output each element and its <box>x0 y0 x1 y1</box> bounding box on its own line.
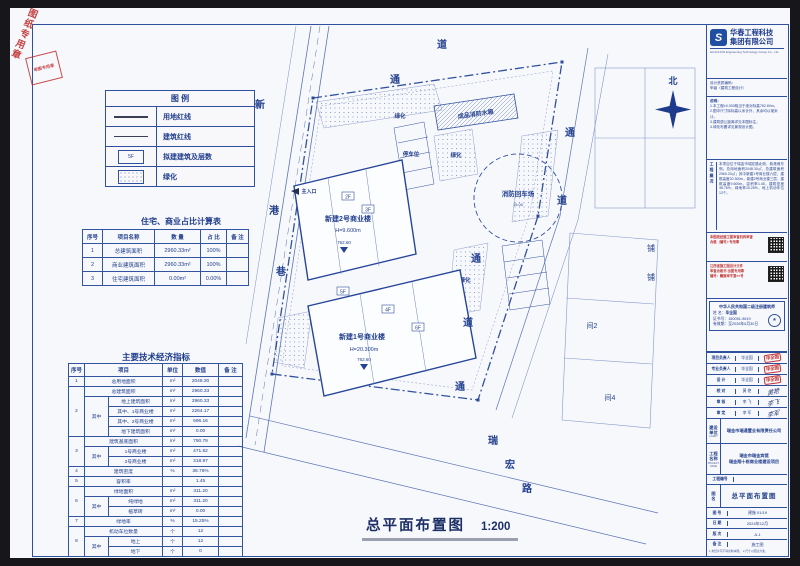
table-row: 其中纯绿地m²311.20 <box>69 497 243 507</box>
table-cell: 其中 <box>85 447 109 467</box>
table-cell: 个 <box>163 547 183 557</box>
ratio-table-title: 住宅、商业占比计算表 <box>106 216 256 227</box>
neighbor-label: 间4 <box>605 394 616 402</box>
table-row: 其中地上个12 <box>69 537 243 547</box>
signature-row: 审 定 李 军 李军 <box>707 408 787 419</box>
figure-name-section: 图 名 总平面布置图 <box>707 485 787 508</box>
architect-valid-date: 至2026年6月30日 <box>728 322 758 326</box>
table-cell <box>219 417 243 427</box>
road-name-char: 通 <box>455 381 465 393</box>
table-cell: 0.00m² <box>155 272 201 286</box>
table-cell: 2960.33m² <box>155 258 201 272</box>
project-no-row: 工程编号 <box>707 475 787 485</box>
building2-height: H=9.600m <box>335 228 361 234</box>
ratio-table: 序号项目名称数 量占 比备 注1总建筑面积2960.33m²100%2商业建筑面… <box>82 229 248 286</box>
table-cell <box>219 507 243 517</box>
company-logo-icon: S <box>710 29 727 46</box>
table-cell: 植草砖 <box>109 507 163 517</box>
table-cell: m² <box>163 427 183 437</box>
header-cell: 数 量 <box>155 230 201 244</box>
title-block: S 华春工程科技 集团有限公司 HUACHUN Engineering Tech… <box>707 24 787 555</box>
buildings <box>294 160 476 396</box>
overview-side-label: 工程概况 <box>710 162 717 230</box>
table-row: 2总建筑面积m²2960.33 <box>69 387 243 397</box>
client-name: 瑞金市瑞通置业有限责任公司 <box>721 419 787 443</box>
signature-row: 项目负责人 毕全国 毕全国 <box>707 353 787 364</box>
architect-stamp: 中华人民共和国二级注册建筑师 姓 名：毕全国 证书号：150051-9619 有… <box>709 301 785 331</box>
table-cell: 其中 <box>85 497 109 517</box>
meta-row: 版 次 A-1 <box>707 529 787 540</box>
building2-name: 新建2号商业楼 <box>325 214 371 223</box>
note-line: 2.图中尺寸除标高以米计外，其余均以毫米计。 <box>710 109 784 119</box>
table-cell: 311.20 <box>183 497 219 507</box>
table-cell: 38.76% <box>183 467 219 477</box>
table-row: 7绿地率%15.25% <box>69 517 243 527</box>
architect-stamp-section: 中华人民共和国二级注册建筑师 姓 名：毕全国 证书号：150051-9619 有… <box>707 299 787 352</box>
table-cell <box>219 427 243 437</box>
company-name-line2: 集团有限公司 <box>730 38 773 46</box>
north-label: 北 <box>668 75 677 86</box>
table-row: 6绿地面积m²311.20 <box>69 487 243 497</box>
table-cell: m² <box>163 397 183 407</box>
table-cell: m² <box>163 377 183 387</box>
qr-code-icon <box>768 237 784 253</box>
fire-turnaround-dim: 15.00 <box>513 202 524 207</box>
sheet-remark: 施工图 <box>728 542 787 548</box>
table-cell: 6 <box>69 487 85 517</box>
table-cell: 其中、1号商业楼 <box>109 407 163 417</box>
table-cell: 1 <box>83 244 103 258</box>
client-section: 建设单位CLIENT 瑞金市瑞通置业有限责任公司 <box>707 419 787 444</box>
table-cell: 100% <box>201 258 227 272</box>
compass-star-icon <box>655 90 691 129</box>
table-cell: 地下建筑面积 <box>109 427 163 437</box>
table-row: 4建筑密度%38.76% <box>69 467 243 477</box>
header-cell: 项目名称 <box>103 230 155 244</box>
entrance-label: 主入口 <box>301 188 316 195</box>
table-cell: 其中、2号商业楼 <box>109 417 163 427</box>
table-cell: 2048.30 <box>183 377 219 387</box>
table-cell: m² <box>163 407 183 417</box>
road-name-char: 新 <box>255 98 265 111</box>
legend-item: 建筑红线 <box>106 127 254 147</box>
table-cell: 318.97 <box>183 457 219 467</box>
building2-elevation: 762.60 <box>337 240 351 245</box>
table-cell: 790.79 <box>183 437 219 447</box>
company-name-en: HUACHUN Engineering Technology Group Co.… <box>710 48 784 54</box>
signature-row: 校 对 黄 艳 黄艳 <box>707 386 787 397</box>
svg-text:4F: 4F <box>385 308 391 314</box>
handwritten-signature: 李军 <box>767 407 779 419</box>
review-stamp-a: 本图纸经施工图审查机构审查 合格（编号）·专用章 <box>707 233 787 262</box>
sheet-title-text: 总平面布置图 <box>366 514 465 535</box>
neighbor-label: 铺 <box>647 272 655 282</box>
table-cell: 个 <box>163 537 183 547</box>
notes-section: 说明： 1.本工程±0.000相当于绝对标高762.60m。 2.图中尺寸除标高… <box>707 97 787 160</box>
table-cell: 12 <box>183 537 219 547</box>
table-cell: 地上建筑面积 <box>109 397 163 407</box>
building-symbol: 5F <box>118 150 144 164</box>
signature-stamp: 毕全国 <box>764 364 782 374</box>
table-row: 3建筑基底面积m²790.79 <box>69 437 243 447</box>
indicator-table: 序号项目单位数值备 注1总用地面积m²2048.302总建筑面积m²2960.3… <box>68 363 242 557</box>
table-cell: 2960.33 <box>183 387 219 397</box>
header-cell: 备 注 <box>219 364 243 377</box>
table-cell: 2号商业楼 <box>109 457 163 467</box>
table-row: 其中1号商业楼m²471.82 <box>69 447 243 457</box>
table-row: 8机动车位数量个12 <box>69 527 243 537</box>
header-cell: 序号 <box>83 230 103 244</box>
table-cell: 总用地面积 <box>85 377 163 387</box>
table-cell: 1 <box>69 377 85 387</box>
table-cell <box>219 447 243 457</box>
table-cell: 2960.33 <box>183 397 219 407</box>
neighbor-parcels <box>562 68 695 428</box>
table-cell: m² <box>163 417 183 427</box>
architect-name: 毕全国 <box>725 311 736 315</box>
footnote: 1.未经许可不得复制本图。 2.尺寸以图注为准。 <box>707 549 787 555</box>
header-cell: 序号 <box>69 364 85 377</box>
table-cell: 100% <box>201 244 227 258</box>
table-cell: 绿地率 <box>85 517 163 527</box>
greenery-symbol <box>118 170 144 184</box>
legend-item: 绿化 <box>106 167 254 186</box>
table-cell: 2 <box>83 258 103 272</box>
company-section: S 华春工程科技 集团有限公司 HUACHUN Engineering Tech… <box>707 24 787 79</box>
road-name-char: 港 <box>269 204 280 217</box>
table-row: 其中地上建筑面积m²2960.33 <box>69 397 243 407</box>
header-cell: 单位 <box>163 364 183 377</box>
table-cell: 建筑密度 <box>85 467 163 477</box>
sheet-meta-rows: 图 号 建施 01/19 日 期 2024年12月 版 次 A-1 备 注 施工… <box>707 508 787 549</box>
table-cell: 地下 <box>109 547 163 557</box>
table-cell <box>219 467 243 477</box>
overview-section: 工程概况 本项目位于瑞金市瑞宏路北侧、新港巷东侧。总用地面积2048.30㎡，总… <box>707 160 787 233</box>
table-cell: 总建筑面积 <box>85 387 163 397</box>
table-cell: 1.45 <box>183 477 219 487</box>
table-row: 1总建筑面积2960.33m²100% <box>83 244 249 258</box>
table-cell: 696.16 <box>183 417 219 427</box>
legend-item: 5F 拟建建筑及层数 <box>106 147 254 167</box>
table-cell: 机动车位数量 <box>85 527 163 537</box>
signature-row: 设 计 毕全国 毕全国 <box>707 375 787 386</box>
architect-stamp-title: 中华人民共和国二级注册建筑师 <box>713 304 781 310</box>
road-name-char: 道 <box>557 194 567 207</box>
table-cell: m² <box>163 497 183 507</box>
table-cell: 商业建筑面积 <box>103 258 155 272</box>
note-line: 4.绿化布置详见景观设计图。 <box>710 125 784 130</box>
meta-row: 日 期 2024年12月 <box>707 519 787 530</box>
meta-row: 图 号 建施 01/19 <box>707 508 787 519</box>
table-cell <box>219 477 243 487</box>
table-cell: 容积率 <box>85 477 163 487</box>
table: 序号项目名称数 量占 比备 注1总建筑面积2960.33m²100%2商业建筑面… <box>82 229 249 286</box>
sheet-number: 建施 01/19 <box>728 510 787 516</box>
table-cell <box>219 377 243 387</box>
paper: 铺 铺 间2 间4 成品消防水箱 <box>10 8 790 558</box>
road-name-char: 通 <box>565 127 575 139</box>
table-cell: 2264.17 <box>183 407 219 417</box>
table-cell: 311.20 <box>183 487 219 497</box>
architect-cert-no: 150051-9619 <box>728 317 750 321</box>
road-name-char: 宏 <box>505 458 515 471</box>
svg-text:2F: 2F <box>345 195 351 201</box>
table-cell <box>219 527 243 537</box>
table-cell: 1号商业楼 <box>109 447 163 457</box>
signature-table: 项目负责人 毕全国 毕全国 专业负责人 毕全国 毕全国 设 计 毕全国 毕全国 … <box>707 353 787 419</box>
table-cell: 建筑基底面积 <box>85 437 163 447</box>
meta-row: 备 注 施工图 <box>707 540 787 550</box>
table-cell: 7 <box>69 517 85 527</box>
building1-elevation: 762.60 <box>357 357 371 362</box>
table-cell: 3 <box>69 437 85 467</box>
sheet-title: 总平面布置图 1:200 <box>362 514 518 541</box>
table-cell: 0.00 <box>183 507 219 517</box>
table-cell <box>219 497 243 507</box>
table-cell: 5 <box>69 477 85 487</box>
table-cell: m² <box>163 387 183 397</box>
table-cell: 0.00% <box>201 272 227 286</box>
svg-text:6F: 6F <box>415 326 421 332</box>
table-row: 1总用地面积m²2048.30 <box>69 377 243 387</box>
svg-text:3F: 3F <box>365 208 371 214</box>
table-cell <box>227 272 249 286</box>
signature-stamp: 毕全国 <box>764 353 782 363</box>
table-cell: m² <box>163 507 183 517</box>
overview-text: 本项目位于瑞金市瑞宏路北侧、新港巷东侧。总用地面积2048.30㎡，总建筑面积2… <box>719 162 784 230</box>
table-cell: 471.82 <box>183 447 219 457</box>
table-cell <box>219 457 243 467</box>
table-cell <box>219 397 243 407</box>
header-cell: 占 比 <box>201 230 227 244</box>
table-cell <box>219 547 243 557</box>
table-row: 2商业建筑面积2960.33m²100% <box>83 258 249 272</box>
neighbor-label: 间2 <box>587 322 598 330</box>
road-name-char: 巷 <box>275 265 287 278</box>
table-cell <box>219 517 243 527</box>
table-cell <box>219 437 243 447</box>
parking-label: 停车位 <box>403 150 420 158</box>
legend-item: 用地红线 <box>106 107 254 127</box>
table-cell: 总建筑面积 <box>103 244 155 258</box>
table-cell <box>227 244 249 258</box>
table-cell: 0 <box>183 547 219 557</box>
table: 序号项目单位数值备 注1总用地面积m²2048.302总建筑面积m²2960.3… <box>68 363 243 557</box>
table-cell: 纯绿地 <box>109 497 163 507</box>
project-section: 工程名称PROJECT NAME 瑞金市瑞金宾馆 瑞金翔十栋商业楼建设项目 <box>707 444 787 475</box>
table-cell <box>219 537 243 547</box>
header-cell: 项目 <box>85 364 163 377</box>
indicator-table-title: 主要技术经济指标 <box>88 351 224 363</box>
table-cell: 3 <box>83 272 103 286</box>
qualification-section: 设计资质编码： 甲级（建筑工程设计） <box>707 79 787 97</box>
table-cell: 12 <box>183 527 219 537</box>
table-cell: 8 <box>69 527 85 557</box>
header-cell: 数值 <box>183 364 219 377</box>
green-label: 绿化 <box>450 151 462 159</box>
table-cell: 其中 <box>85 397 109 437</box>
road-name-char: 瑞 <box>488 434 498 447</box>
road-name-char: 通 <box>471 253 481 265</box>
table-cell: 0.00 <box>183 427 219 437</box>
table-cell: 个 <box>163 527 183 537</box>
sheet-date: 2024年12月 <box>728 521 787 527</box>
svg-text:5F: 5F <box>340 290 346 296</box>
table-cell: 其中 <box>85 537 109 557</box>
table-cell: % <box>163 467 183 477</box>
road-name-char: 通 <box>390 74 400 86</box>
signature-row: 专业负责人 毕全国 毕全国 <box>707 364 787 375</box>
green-label: 绿化 <box>394 112 406 120</box>
fire-turnaround-label: 消防回车场 <box>502 189 535 198</box>
table-cell: 2 <box>69 387 85 437</box>
table-row: 3住宅建筑面积0.00m²0.00% <box>83 272 249 286</box>
road-name-char: 道 <box>463 316 473 329</box>
road-name-char: 道 <box>437 38 447 51</box>
sheet-scale: 1:200 <box>481 521 510 533</box>
legend-title: 图 例 <box>106 91 254 107</box>
table-cell: % <box>163 517 183 527</box>
building1-height: H=20.300m <box>350 347 379 353</box>
signature-row: 审 核 李 飞 李飞 <box>707 397 787 408</box>
drawing-sheet: 铺 铺 间2 间4 成品消防水箱 <box>0 0 800 566</box>
table-cell <box>219 487 243 497</box>
table-cell: 住宅建筑面积 <box>103 272 155 286</box>
neighbor-label: 铺 <box>647 243 655 253</box>
table-cell: m² <box>163 437 183 447</box>
table-cell: m² <box>163 487 183 497</box>
table-cell: m² <box>163 457 183 467</box>
table-cell: m² <box>163 447 183 457</box>
legend: 图 例 用地红线 建筑红线 5F 拟建建筑及层数 绿化 <box>105 90 255 187</box>
north-arrow: 北 <box>655 75 691 129</box>
road-name-char: 路 <box>522 482 533 495</box>
table-row: 5容积率1.45 <box>69 477 243 487</box>
qr-code-icon <box>768 266 784 282</box>
table-cell <box>219 387 243 397</box>
table-cell <box>163 477 183 487</box>
table-cell: 4 <box>69 467 85 477</box>
qualification-value: 甲级（建筑工程设计） <box>710 86 784 91</box>
land-redline-symbol <box>114 116 148 118</box>
table-cell <box>219 407 243 417</box>
table-cell: 2960.33m² <box>155 244 201 258</box>
table-cell: 绿地面积 <box>85 487 163 497</box>
sheet-revision: A-1 <box>728 532 787 537</box>
project-name-line2: 瑞金翔十栋商业楼建设项目 <box>729 459 779 465</box>
figure-name: 总平面布置图 <box>721 485 787 507</box>
registration-seal-icon: ★ <box>768 314 781 327</box>
header-cell: 备 注 <box>227 230 249 244</box>
table-cell: 15.25% <box>183 517 219 527</box>
signature-stamp: 毕全国 <box>764 375 782 385</box>
review-stamp-b: 江西省施工图设计文件 审查合格书·出图专用章 编号：赣施审字第××号 <box>707 262 787 299</box>
table-cell: 地上 <box>109 537 163 547</box>
building1-name: 新建1号商业楼 <box>339 332 385 341</box>
table-cell <box>227 258 249 272</box>
building-redline-symbol <box>114 136 148 137</box>
